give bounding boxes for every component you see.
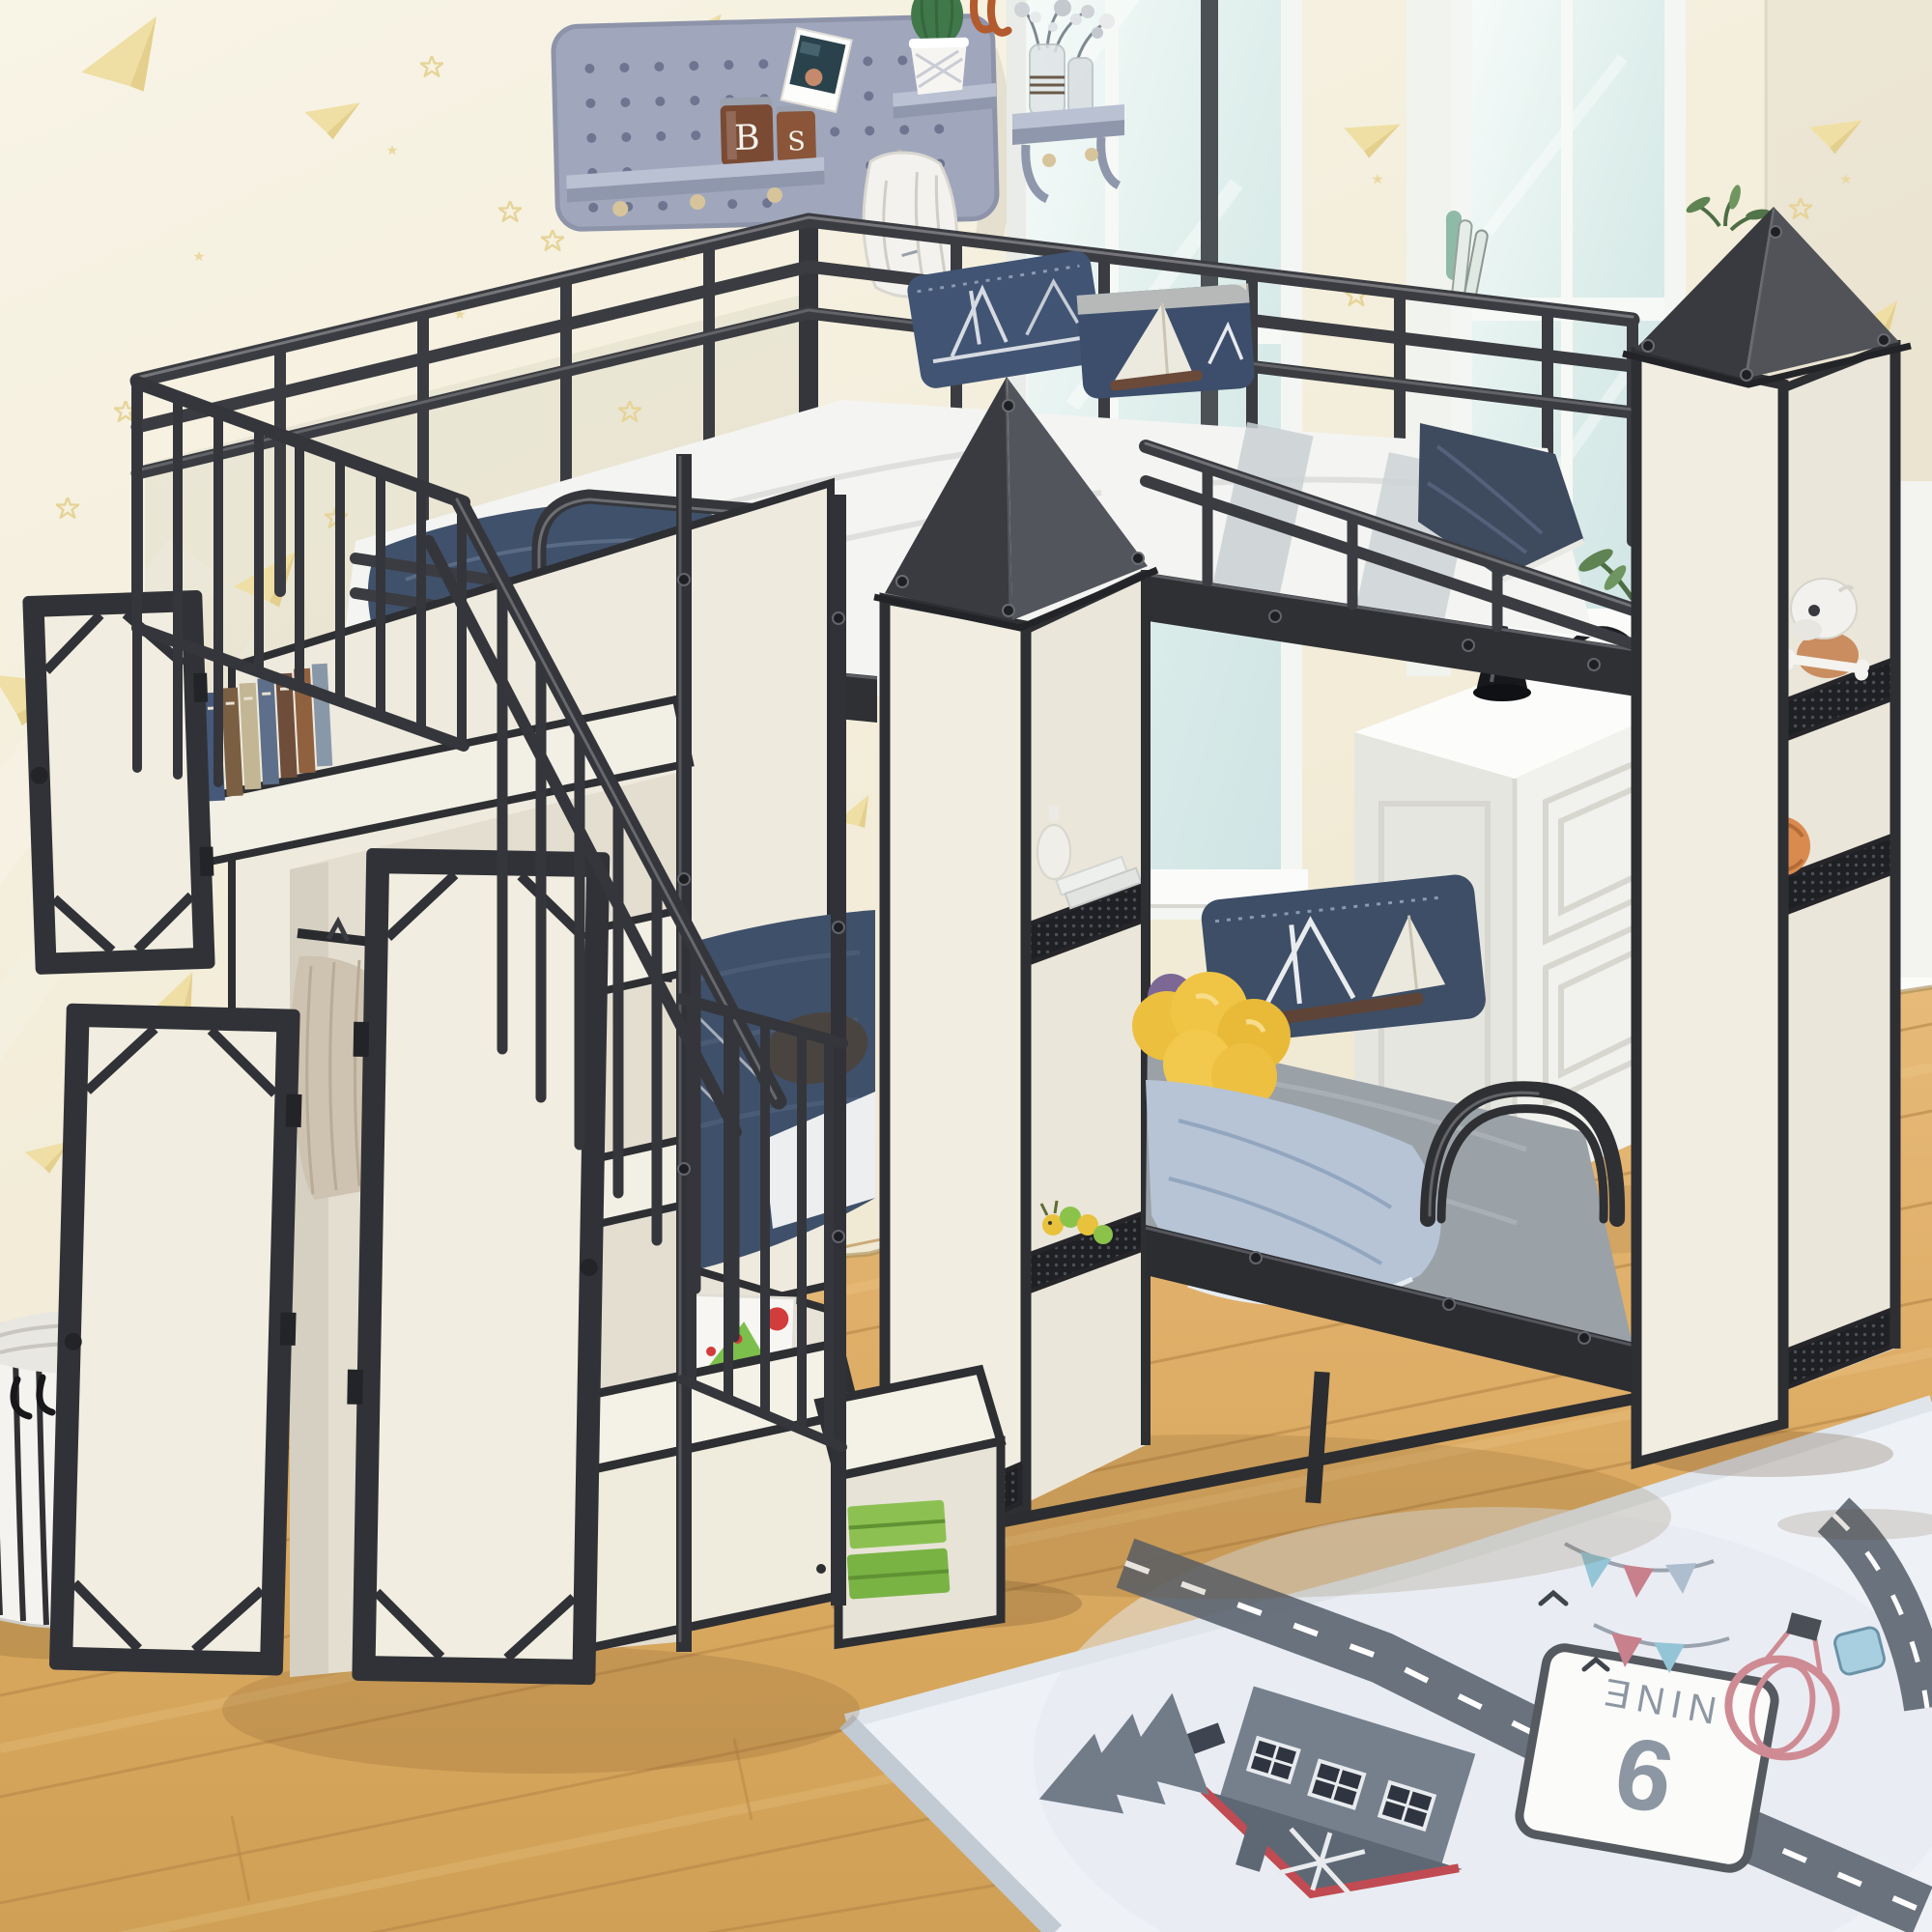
wardrobe-door-left: [49, 1004, 304, 1676]
cactus-pot: [907, 0, 970, 95]
jar-letter-s: S: [787, 127, 806, 156]
pegboard-jars: B S: [720, 96, 816, 166]
product-photo: B S: [0, 0, 1932, 1932]
right-tower: [1623, 207, 1911, 1463]
rug-blue-tile: [1833, 1626, 1887, 1676]
green-drawer-cubby: [819, 1370, 1001, 1644]
wardrobe-door-front: [342, 848, 610, 1685]
upper-navy-pillow-2: [1077, 283, 1256, 399]
jar-letter-b: B: [734, 118, 761, 158]
